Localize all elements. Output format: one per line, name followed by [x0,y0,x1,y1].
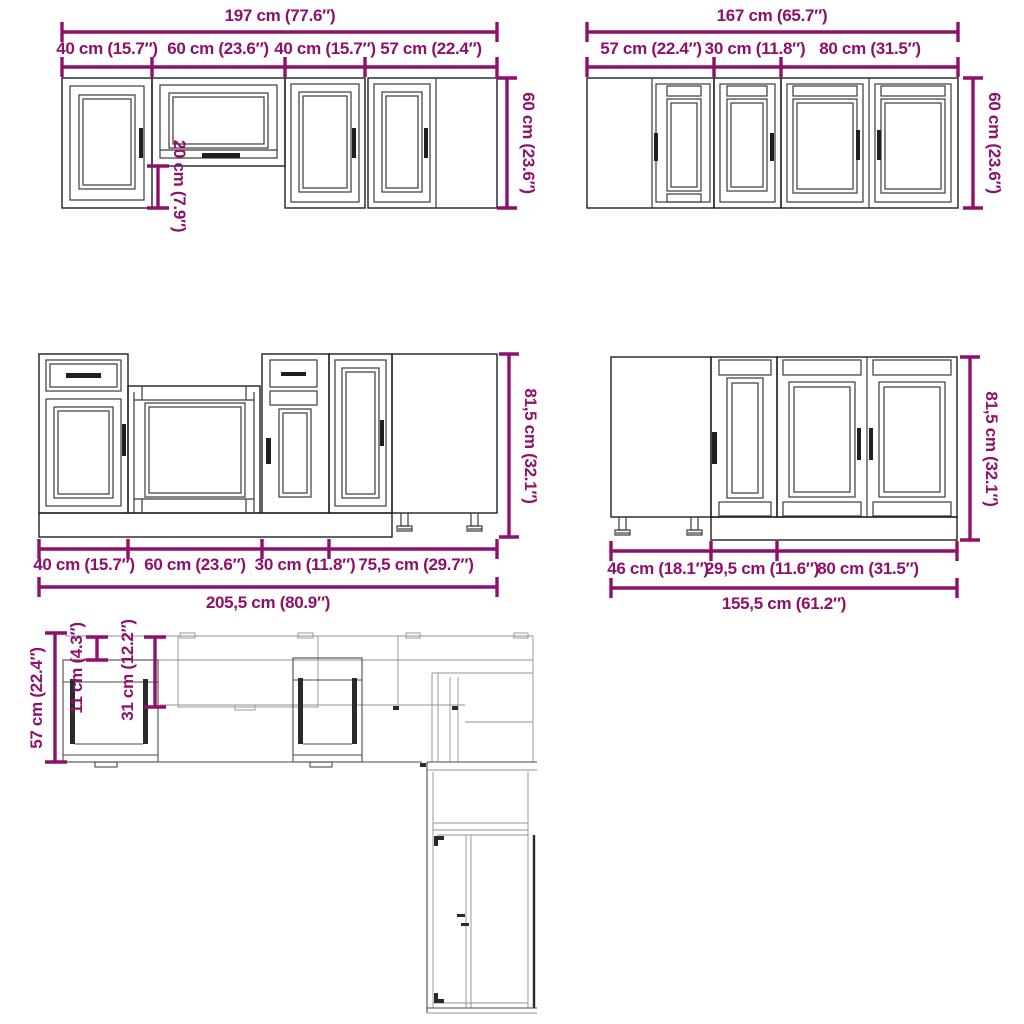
segment-width-label: 57 cm (22.4″) [600,39,702,58]
dim-height: 81,5 cm (32.1″) [960,357,1001,540]
height-label: 60 cm (23.6″) [985,92,1004,194]
dim-segment-widths: 40 cm (15.7″) 60 cm (23.6″) 40 cm (15.7″… [56,39,497,77]
total-width-label: 197 cm (77.6″) [225,6,336,25]
dim-total-width: 155,5 cm (61.2″) [611,578,957,613]
base-run-left-cabinets [39,354,497,537]
dim-wall-depth: 31 cm (12.2″) [118,619,166,721]
segment-width-label: 80 cm (31.5″) [819,39,921,58]
door-handle [139,128,143,158]
height-label: 60 cm (23.6″) [519,92,538,194]
dim-height: 60 cm (23.6″) [497,78,538,208]
diagram-canvas: 197 cm (77.6″) 40 cm (15.7″) 60 cm (23.6… [0,0,1024,1024]
dim-segment-widths: 40 cm (15.7″) 60 cm (23.6″) 30 cm (11.8″… [33,539,497,574]
total-width-label: 205,5 cm (80.9″) [206,593,330,612]
segment-width-label: 40 cm (15.7″) [274,39,376,58]
flip-drop-label: 20 cm (7.9″) [170,140,189,232]
segment-width-label: 75,5 cm (29.7″) [358,555,473,574]
door-handle [856,130,860,160]
wall-depth-label: 31 cm (12.2″) [118,619,137,721]
adjustable-feet [615,517,702,535]
door-handle [122,424,126,456]
segment-width-label: 46 cm (18.1″) [607,559,709,578]
dim-back-offset: 11 cm (4.3″) [67,622,108,714]
door-handle [352,128,356,158]
wall-cabinet-run-right: 167 cm (65.7″) 57 cm (22.4″) 30 cm (11.8… [587,6,1004,208]
dim-segment-widths: 46 cm (18.1″) 29,5 cm (11.6″) 80 cm (31.… [607,541,957,578]
door-handle [857,428,861,460]
depth-label: 57 cm (22.4″) [27,647,46,749]
segment-width-label: 60 cm (23.6″) [167,39,269,58]
wall-cabinet-run-left: 197 cm (77.6″) 40 cm (15.7″) 60 cm (23.6… [56,6,538,232]
dim-total-width: 167 cm (65.7″) [587,6,958,42]
door-handle [712,432,717,464]
height-label: 81,5 cm (32.1″) [521,388,540,503]
door-handle [654,133,658,161]
total-width-label: 155,5 cm (61.2″) [722,594,846,613]
dim-depth: 57 cm (22.4″) [27,633,67,762]
back-offset-label: 11 cm (4.3″) [67,622,86,714]
segment-width-label: 30 cm (11.8″) [705,39,806,58]
height-label: 81,5 cm (32.1″) [982,391,1001,506]
flip-door-handle [202,153,240,158]
segment-width-label: 40 cm (15.7″) [33,555,135,574]
segment-width-label: 30 cm (11.8″) [255,555,356,574]
segment-width-label: 40 cm (15.7″) [56,39,158,58]
wall-run-right-cabinets [587,78,958,208]
dim-height: 81,5 cm (32.1″) [499,354,540,537]
dim-total-width: 197 cm (77.6″) [62,6,497,42]
door-handle [380,420,384,446]
door-handle [877,130,881,160]
segment-width-label: 29,5 cm (11.6″) [705,559,819,578]
wall-run-left-cabinets [62,78,497,208]
drawer-handle [66,373,101,378]
dim-flip-drop: 20 cm (7.9″) [147,140,189,232]
door-handle [266,438,271,464]
kitchen-dimension-diagram: 197 cm (77.6″) 40 cm (15.7″) 60 cm (23.6… [0,0,1024,1024]
door-handle [869,428,873,460]
dim-segment-widths: 57 cm (22.4″) 30 cm (11.8″) 80 cm (31.5″… [587,39,958,77]
base-cabinet-run-right: 46 cm (18.1″) 29,5 cm (11.6″) 80 cm (31.… [607,357,1001,613]
base-cabinet-run-left: 40 cm (15.7″) 60 cm (23.6″) 30 cm (11.8″… [33,354,540,612]
segment-width-label: 80 cm (31.5″) [817,559,919,578]
door-handle [770,133,774,161]
dim-height: 60 cm (23.6″) [963,78,1004,208]
door-handle [424,128,428,158]
drawer-handle [281,372,306,376]
base-run-right-cabinets [611,357,957,540]
dim-total-width: 205,5 cm (80.9″) [39,577,497,612]
total-width-label: 167 cm (65.7″) [717,6,828,25]
adjustable-feet [397,513,482,531]
segment-width-label: 60 cm (23.6″) [144,555,246,574]
segment-width-label: 57 cm (22.4″) [380,39,482,58]
l-shape-plan-view: 57 cm (22.4″) 11 cm (4.3″) 31 cm (12.2″) [27,619,537,1013]
